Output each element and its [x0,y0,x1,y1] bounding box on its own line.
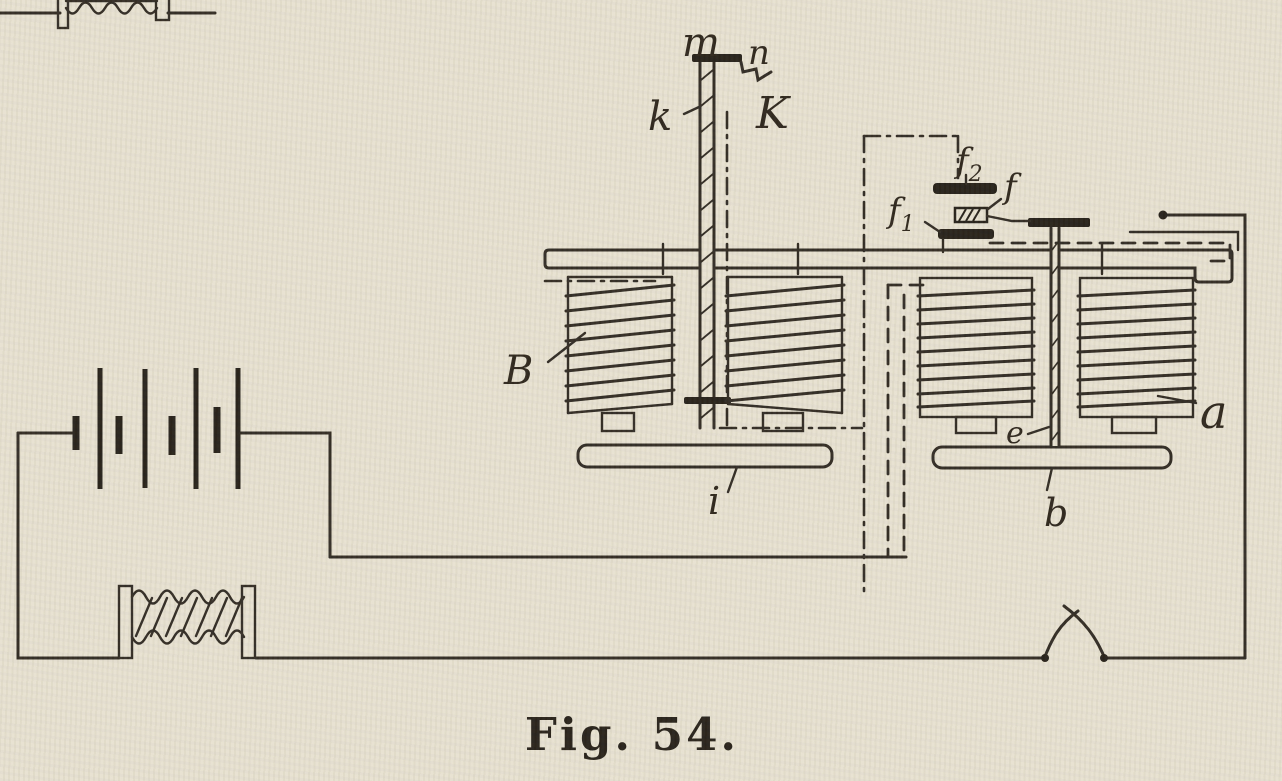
pole-foot [602,413,634,431]
resistance-coil [119,586,255,658]
junction-dot [1159,211,1168,220]
pole-foot [1112,417,1156,433]
electromagnet-B [548,277,844,492]
coil-a-right [1078,278,1195,433]
armature-bar-i [578,445,832,467]
label-e: e [1006,416,1024,451]
label-n: n [748,33,770,73]
contact-support-f1 [938,229,994,239]
leader-i [728,467,737,492]
leader-B [548,333,585,362]
label-m: m [682,20,720,66]
rod-e-cap [1028,218,1090,227]
label-i: i [708,479,720,523]
label-K: K [755,88,791,139]
cropped-coil-fragment [0,0,215,28]
scanned-book-page: m n K k f1 f2 f B a e i b Fig. 54. [0,0,1282,781]
coil-B-right [726,277,844,431]
leader-b [1047,468,1052,490]
interrupter-switch [1041,606,1108,662]
circuit-figure-54: m n K k f1 f2 f B a e i b Fig. 54. [0,0,1282,781]
coil-a-left [918,278,1034,433]
label-f: f [1001,167,1022,207]
coil-B-left [566,277,674,431]
battery-symbol [18,368,330,557]
leader-f [988,199,1001,209]
label-B: B [503,348,533,394]
label-a: a [1200,385,1227,439]
leader-f1 [925,222,940,232]
leader-e [1028,427,1049,434]
label-f1: f1 [885,191,915,237]
armature-bar-b [933,447,1171,468]
pole-foot [956,417,996,433]
figure-caption: Fig. 54. [525,708,739,761]
label-f2: f2 [953,141,983,187]
label-b: b [1044,491,1068,535]
label-k: k [648,94,672,140]
